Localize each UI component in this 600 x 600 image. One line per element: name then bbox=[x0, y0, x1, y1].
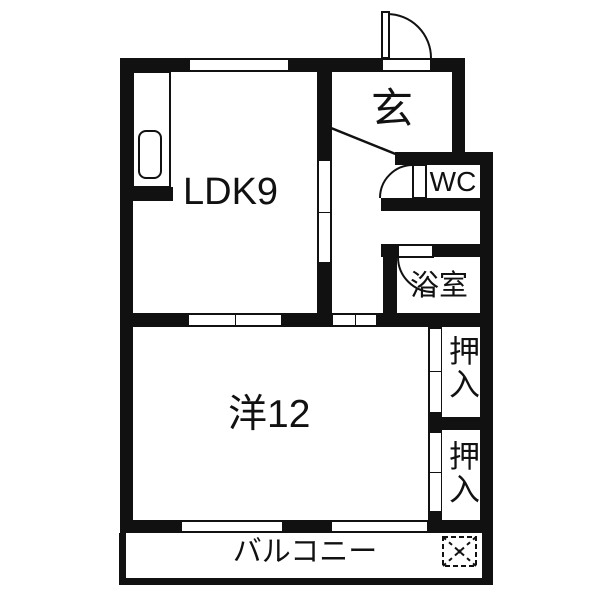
room-label-entrance: 玄 bbox=[371, 87, 413, 131]
floor-plan: LDK9 玄 WC 浴室 洋12 押入 押入 バルコニー bbox=[0, 0, 600, 600]
room-label-balcony: バルコニー bbox=[130, 537, 480, 567]
room-label-closet-lower: 押入 bbox=[446, 440, 477, 506]
entrance-step-line bbox=[331, 128, 398, 155]
plan-symbols bbox=[0, 0, 600, 600]
room-label-closet-upper: 押入 bbox=[446, 335, 477, 401]
room-label-western: 洋12 bbox=[228, 395, 310, 436]
kitchen-sink bbox=[139, 131, 161, 178]
entrance-door bbox=[382, 12, 431, 58]
room-label-ldk: LDK9 bbox=[183, 173, 278, 213]
room-label-bath: 浴室 bbox=[401, 271, 477, 301]
room-label-wc: WC bbox=[426, 167, 480, 196]
wc-door bbox=[380, 165, 426, 198]
